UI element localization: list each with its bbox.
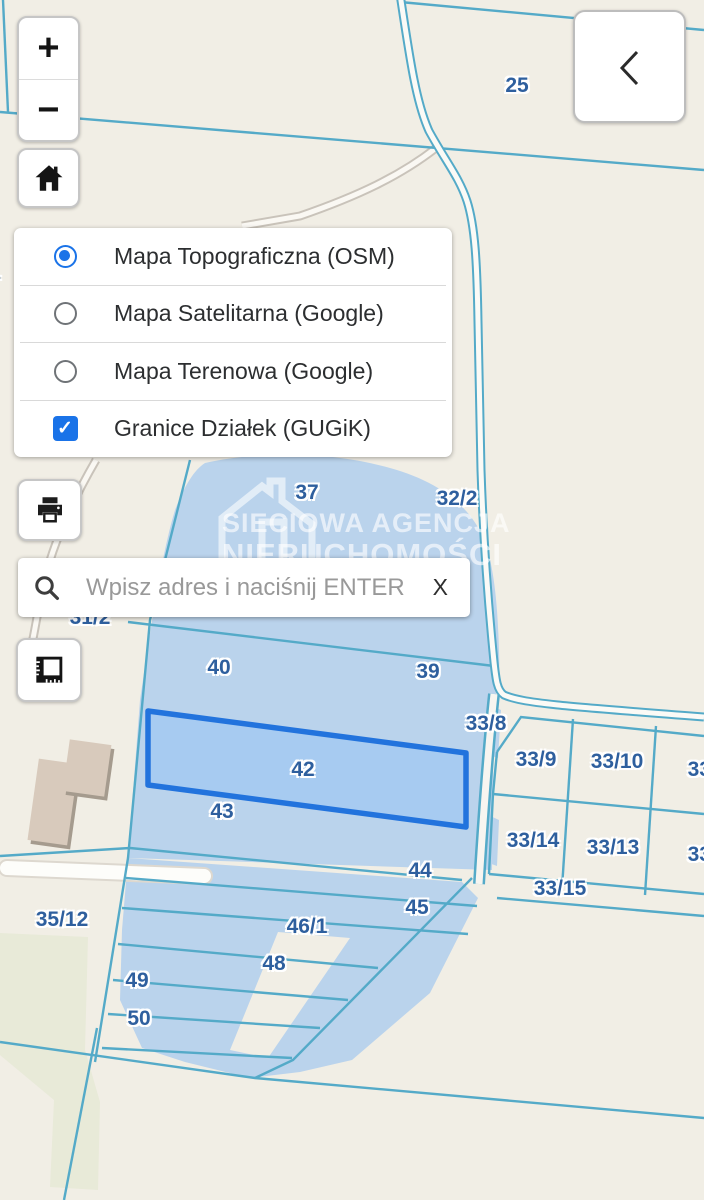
home-button[interactable]: [17, 148, 80, 208]
measure-button[interactable]: [16, 638, 82, 702]
overlay-toggle-label: Granice Działek (GUGiK): [114, 415, 371, 442]
checkbox-checked-icon[interactable]: ✓: [53, 416, 78, 441]
home-icon: [32, 161, 66, 195]
chevron-left-icon: [604, 38, 656, 96]
search-icon: [32, 573, 62, 603]
layer-option-label: Mapa Satelitarna (Google): [114, 300, 384, 327]
radio-icon[interactable]: [54, 302, 77, 325]
layer-option-terrain[interactable]: Mapa Terenowa (Google): [14, 343, 452, 400]
layer-panel: Mapa Topograficzna (OSM) Mapa Satelitarn…: [14, 228, 452, 457]
ruler-square-icon: [30, 651, 68, 689]
printer-icon: [32, 492, 68, 528]
zoom-out-button[interactable]: −: [19, 80, 78, 141]
radio-icon[interactable]: [54, 360, 77, 383]
parcel-borders-toggle[interactable]: ✓ Granice Działek (GUGiK): [14, 401, 452, 458]
clear-search-button[interactable]: X: [425, 574, 456, 601]
zoom-controls: + −: [17, 16, 80, 142]
layer-option-label: Mapa Terenowa (Google): [114, 358, 373, 385]
layer-option-satellite[interactable]: Mapa Satelitarna (Google): [14, 286, 452, 343]
map-app: 25 /1 37 32/2 31/2 40 39 33/8 33/9 33/10…: [0, 0, 704, 1200]
radio-selected-icon[interactable]: [54, 245, 77, 268]
layer-option-topographic[interactable]: Mapa Topograficzna (OSM): [14, 228, 452, 285]
back-button[interactable]: [573, 10, 686, 123]
search-input[interactable]: [84, 573, 425, 603]
search-bar: X: [18, 558, 470, 617]
layer-option-label: Mapa Topograficzna (OSM): [114, 243, 395, 270]
print-button[interactable]: [17, 479, 82, 541]
driveway: [7, 868, 204, 876]
zoom-in-button[interactable]: +: [19, 18, 78, 79]
